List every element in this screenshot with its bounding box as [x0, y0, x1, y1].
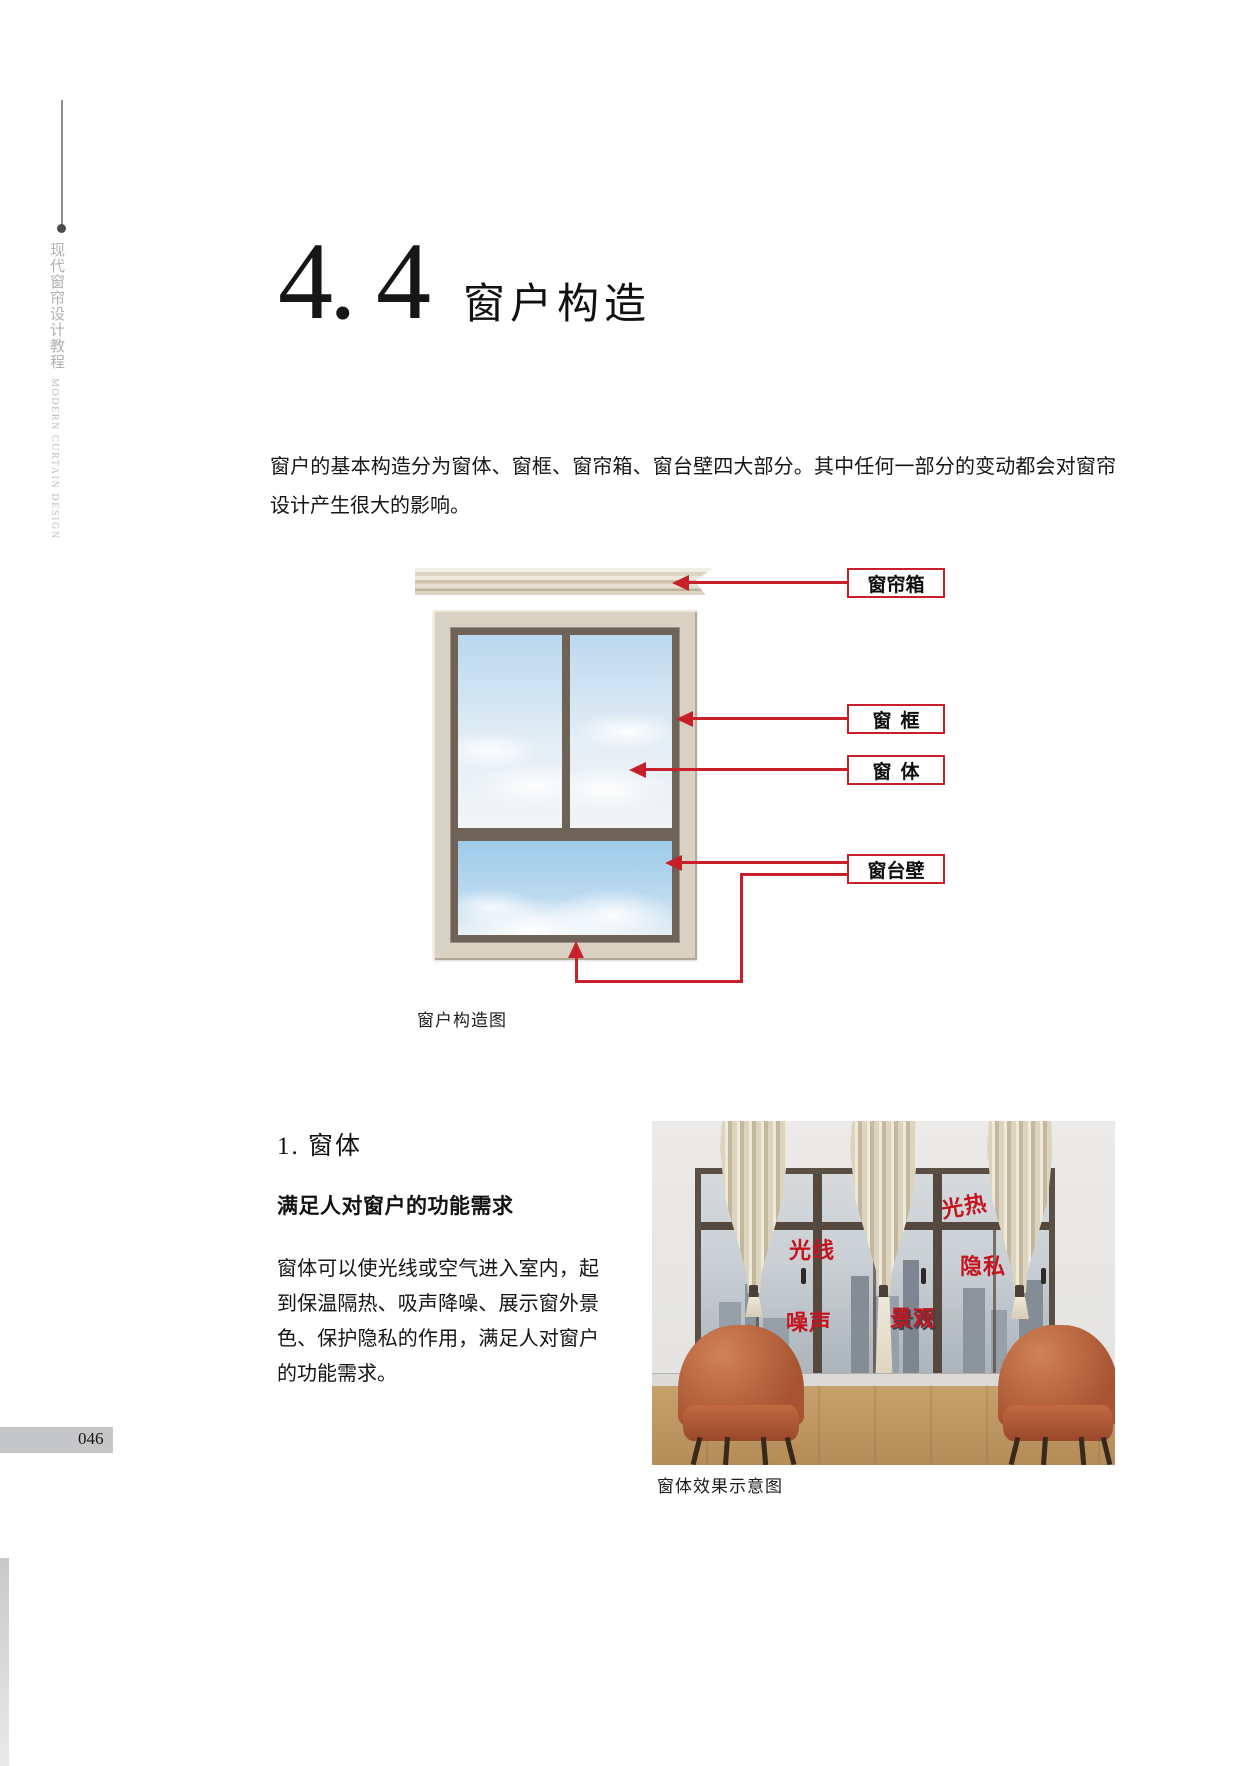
- arrow-head-sill-wall: [665, 855, 682, 871]
- window-handle: [801, 1268, 806, 1284]
- armchair-leg: [1079, 1437, 1086, 1465]
- arrow-head-window-bottom: [568, 941, 584, 958]
- window-frame: [433, 610, 697, 960]
- chapter-heading: 4. 4 窗户构造: [278, 226, 651, 336]
- page-number: 046: [78, 1429, 104, 1449]
- diagram-label-window-body: 窗体: [847, 755, 945, 785]
- arrow-line-sill-wall: [680, 861, 847, 864]
- arrow-head-window-frame: [676, 711, 693, 727]
- diagram-label-window-frame: 窗框: [847, 704, 945, 734]
- connector-bottom-segment: [575, 980, 743, 983]
- city-building: [851, 1276, 869, 1380]
- photo-label-noise: 噪声: [786, 1305, 832, 1337]
- armchair-right: [998, 1325, 1115, 1465]
- photo-label-privacy: 隐私: [960, 1249, 1006, 1281]
- room-photo: 光线 光热 隐私 噪声 景观: [652, 1121, 1115, 1465]
- armchair-leg: [723, 1437, 730, 1465]
- photo-label-view: 景观: [890, 1301, 936, 1333]
- armchair-seat: [683, 1405, 799, 1441]
- intro-paragraph: 窗户的基本构造分为窗体、窗框、窗帘箱、窗台壁四大部分。其中任何一部分的变动都会对…: [270, 448, 1116, 526]
- armchair-leg: [785, 1437, 797, 1465]
- window-mullion: [562, 635, 570, 828]
- armchair-leg: [1041, 1437, 1048, 1465]
- glass-pane-lower: [458, 841, 672, 935]
- chapter-title: 窗户构造: [463, 270, 651, 331]
- armchair-seat: [1003, 1405, 1113, 1441]
- section-heading: 1. 窗体: [277, 1126, 362, 1162]
- section-body-paragraph: 窗体可以使光线或空气进入室内，起到保温隔热、吸声降噪、展示窗外景色、保护隐私的作…: [277, 1252, 599, 1392]
- sidebar-rule-dot: [57, 224, 66, 233]
- page-edge-strip: [0, 1558, 9, 1766]
- photo-caption: 窗体效果示意图: [657, 1472, 783, 1497]
- section-subheading: 满足人对窗户的功能需求: [277, 1190, 514, 1220]
- photo-label-light: 光线: [789, 1233, 835, 1265]
- armchair-leg: [1009, 1437, 1021, 1465]
- arrow-head-curtain-box: [672, 575, 689, 591]
- glass-pane-upper-left: [458, 635, 562, 828]
- window-handle: [921, 1268, 926, 1284]
- book-page: 现代窗帘设计教程 MODERN CURTAIN DESIGN 4. 4 窗户构造…: [0, 0, 1241, 1766]
- diagram-caption: 窗户构造图: [417, 1006, 507, 1031]
- diagram-label-sill-wall: 窗台壁: [847, 854, 945, 884]
- curtain-box-cornice: [415, 568, 713, 595]
- armchair-left: [678, 1325, 804, 1465]
- armchair-leg: [1101, 1437, 1113, 1465]
- sidebar-book-title-en: MODERN CURTAIN DESIGN: [49, 378, 60, 540]
- sidebar-rule-line: [61, 100, 63, 226]
- window-handle: [1041, 1268, 1046, 1284]
- city-building: [963, 1288, 985, 1380]
- chapter-number: 4. 4: [278, 226, 427, 336]
- glass-pane-upper-right: [570, 635, 672, 828]
- armchair-leg: [691, 1437, 703, 1465]
- sidebar-book-title-cn: 现代窗帘设计教程: [46, 242, 67, 370]
- connector-right-segment: [740, 873, 743, 983]
- armchair-leg: [761, 1437, 768, 1465]
- arrow-line-window-frame: [691, 717, 847, 720]
- window-meeting-rail: [458, 828, 672, 841]
- connector-up-segment: [575, 955, 578, 983]
- diagram-label-curtain-box: 窗帘箱: [847, 568, 945, 598]
- arrow-line-window-body: [644, 768, 847, 771]
- arrow-line-curtain-box: [687, 581, 847, 584]
- connector-top-segment: [743, 873, 847, 876]
- window-sash-frame: [451, 628, 679, 942]
- window-mullion: [813, 1174, 822, 1380]
- arrow-head-window-body: [629, 762, 646, 778]
